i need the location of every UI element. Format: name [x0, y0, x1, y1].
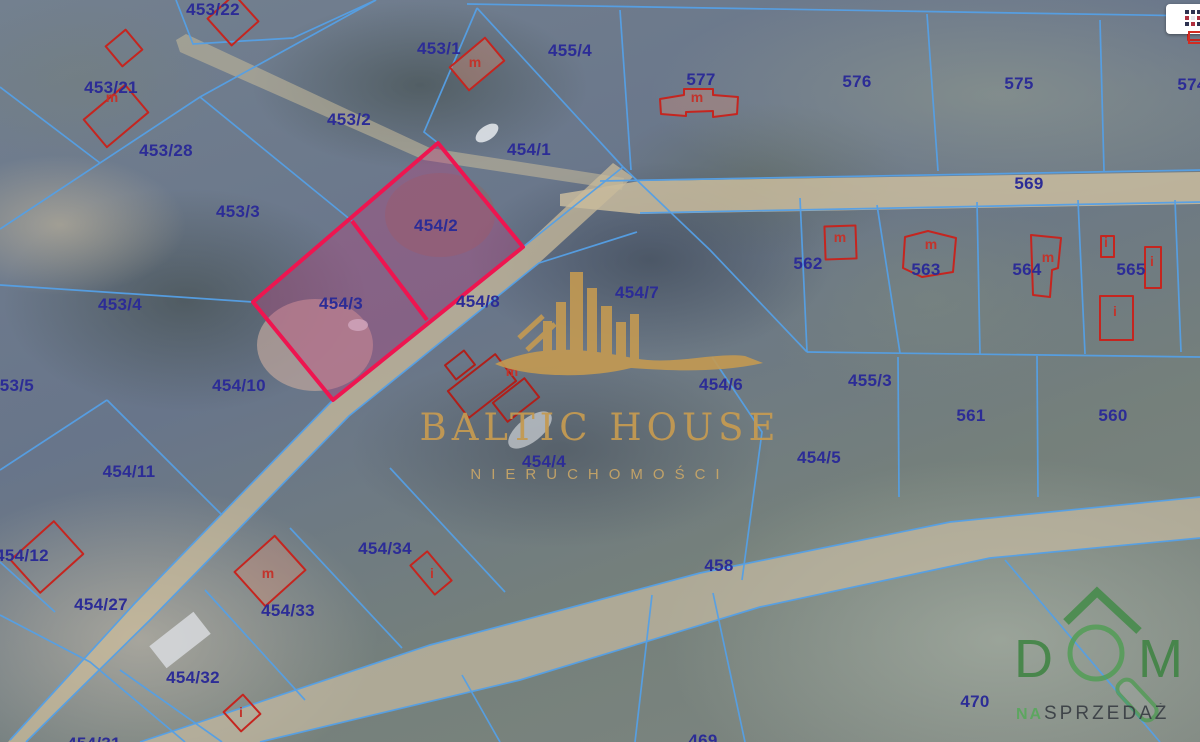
map-viewport[interactable]: 453/22453/21453/2453/28453/1455/4577454/… — [0, 0, 1200, 742]
magnifier-icon — [1070, 627, 1122, 679]
logo-letter-m: M — [1138, 632, 1183, 686]
grid-icon — [1184, 9, 1200, 27]
logo-letter-d: D — [1014, 632, 1053, 686]
map-grid-button[interactable] — [1166, 4, 1200, 34]
clipped-building-outline — [1188, 31, 1200, 44]
logo-tagline-sprzedaz: SPRZEDAŻ — [1044, 703, 1169, 725]
roof-icon — [1066, 592, 1139, 631]
logo-tagline-na: NA — [1016, 706, 1043, 724]
